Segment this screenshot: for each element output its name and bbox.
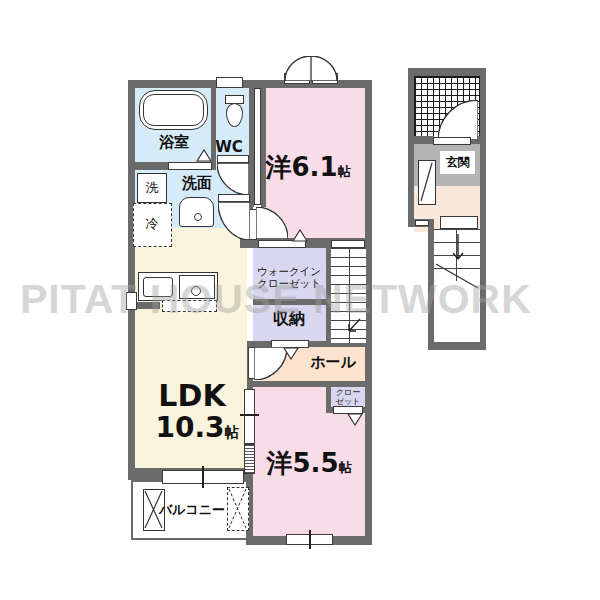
western-room-5-5-unit: 帖 [339,460,352,475]
stairs-top-opening [331,240,365,248]
wall-1f-bottom [428,342,486,350]
closet-5-5-label: クロー ゼット [336,388,361,406]
wc-door-swing [217,163,249,195]
closet-5-5-line1: クロー [336,388,361,397]
wall-room61-left-upper [261,80,266,207]
ldk-size: 10.3 [155,411,224,444]
shoe-cabinet [418,160,436,205]
western-room-5-5-name: 洋5.5 [266,448,338,478]
ldk-label: LDK [158,379,225,414]
window-above-wc [216,77,243,88]
wall-kitchen-stub [133,302,160,309]
wall-right [365,80,372,545]
walkin-closet-label: ウォークイン クローゼット [257,265,321,289]
casement-window-left [285,56,311,81]
ldk-size-label: 10.3帖 [155,412,238,444]
washroom-door-swing [218,202,250,240]
storage-door-triangle [283,347,299,360]
walkin-closet-line1: ウォークイン [257,265,321,277]
western-room-6-1-label: 洋6.1帖 [265,153,350,183]
wall-1f-left-upper [408,68,414,227]
fridge-label: 冷 [146,217,159,232]
wc-label: WC [215,139,243,156]
kitchen-counter-edge [162,300,217,312]
walkin-closet-line2: クローゼット [257,277,321,289]
hall-label: ホール [310,354,356,371]
wall-wic-storage [253,299,326,305]
entrance-label: 玄関 [446,156,470,170]
bathtub-icon [139,90,208,130]
window-55-bottom-tick [309,530,311,549]
bath-door-triangle [196,149,212,162]
window-ldk-balcony-tick [202,466,204,488]
western-room-6-1-name: 洋6.1 [265,152,337,182]
washbasin-icon [179,197,214,227]
washroom-label: 洗面 [182,175,212,192]
window-kitchen-left [126,292,137,310]
western-room-6-1-unit: 帖 [338,164,351,179]
ldk-unit: 帖 [225,424,239,440]
sliding-door-ldk-55 [244,389,255,444]
sliding-door-stack [244,444,255,474]
stairs-2f-arrow-icon [344,316,364,336]
wall-1f-top [408,68,486,76]
bathroom-label: 浴室 [159,134,189,151]
wall-1f-right [480,68,486,350]
sliding-door-tick [240,414,259,416]
room61-door-swing [256,207,288,239]
floorplan-canvas: 浴室 WC 洗 洗面 冷 洋6.1帖 ウォークイン クローゼット 収納 ホール … [0,0,600,600]
vent-1f-left [415,220,429,226]
balcony-unit-optional [227,487,249,531]
casement-window-right [311,56,337,81]
western-room-5-5-label: 洋5.5帖 [266,449,351,479]
stairs-1f-arrow-icon [450,232,472,268]
entrance-step [440,216,478,229]
washroom-door-leaf [218,194,250,202]
wall-hall-bottom [247,381,366,387]
pipe-space [254,88,261,205]
entrance-door-leaf [433,137,471,145]
wall-left [128,80,135,471]
bath-door-opening [168,162,212,170]
balcony-label: バルコニー [159,503,225,518]
kitchen-counter [138,272,218,301]
washer-label: 洗 [146,181,159,196]
closet55-door-triangle [347,413,363,426]
wall-1f-door-left [414,136,434,144]
closet-5-5-line2: ゼット [336,397,361,406]
entrance-door-swing [438,100,478,140]
storage-label: 収納 [273,310,305,328]
room61-door-triangle [292,229,308,242]
